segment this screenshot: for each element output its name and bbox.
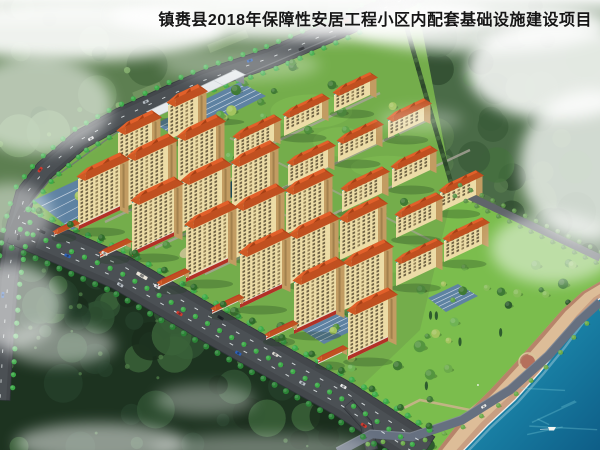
fog-patch [160, 49, 320, 81]
fog-patch [378, 108, 462, 132]
fog-patch [5, 325, 115, 365]
project-title-text: 镇赉县2018年保障性安居工程小区内配套基础设施建设项目 [158, 6, 592, 30]
architectural-rendering-image: 镇赉县2018年保障性安居工程小区内配套基础设施建设项目 [0, 0, 600, 450]
fog-patch [155, 385, 255, 415]
scene-svg [0, 0, 600, 450]
